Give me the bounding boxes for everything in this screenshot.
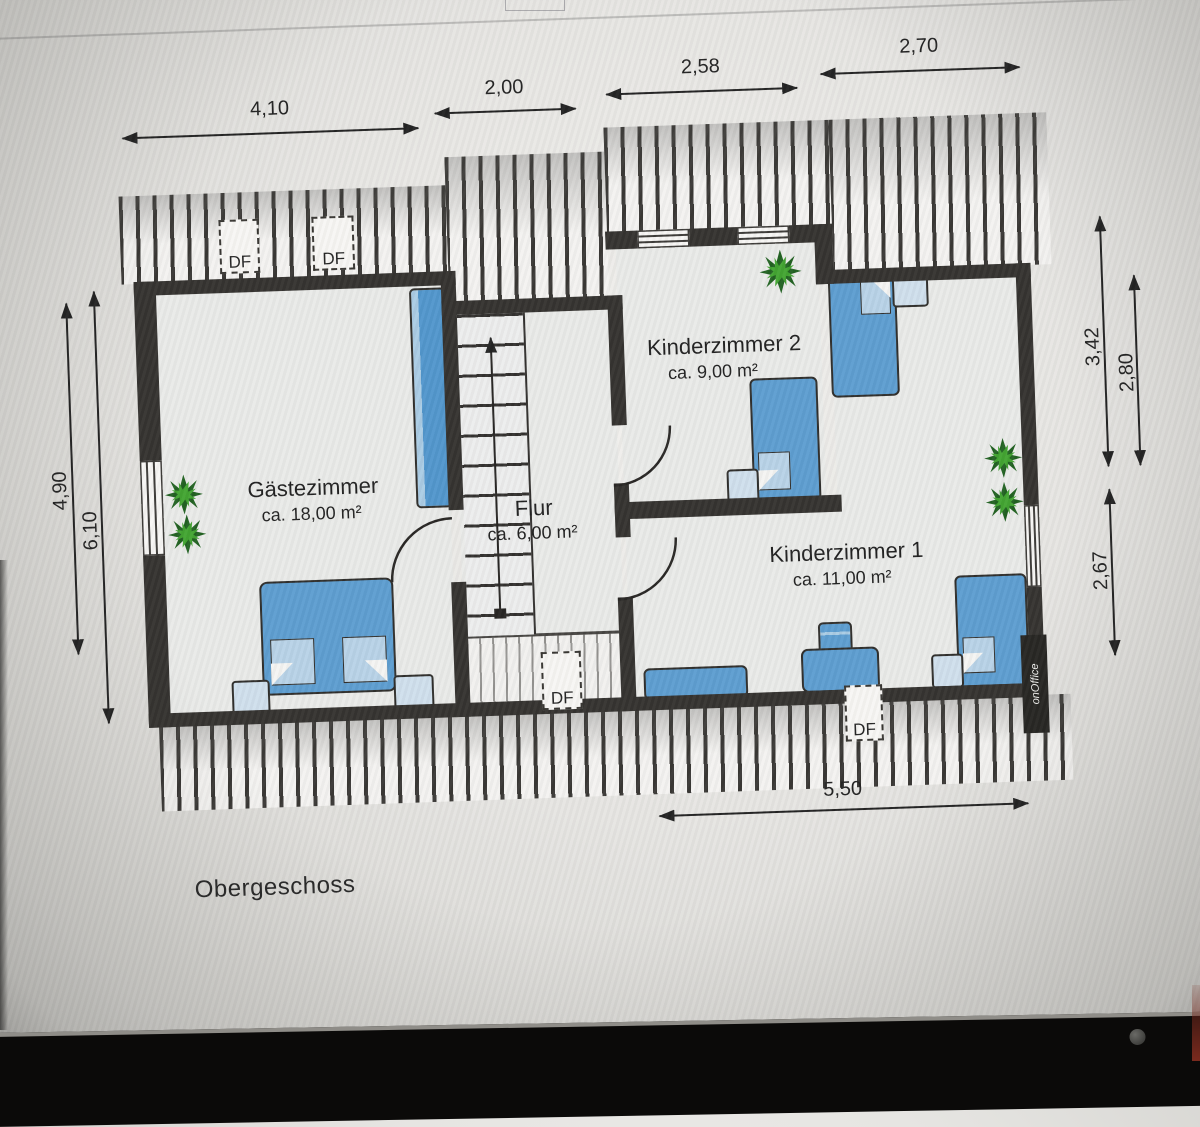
watermark-text: onOffice <box>1028 663 1041 704</box>
dim-label-bottom: 5,50 <box>823 778 863 802</box>
dim-line-top-2 <box>435 109 576 114</box>
room-name-hall: Flur <box>514 495 553 522</box>
dim-line-bottom <box>659 803 1028 816</box>
room-name-child1: Kinderzimmer 1 <box>769 537 924 568</box>
room-name-child2: Kinderzimmer 2 <box>647 330 802 361</box>
dim-label-right-2: 2,80 <box>1115 353 1139 393</box>
room-area-guest: ca. 18,00 m² <box>261 502 362 526</box>
dim-label-right-3: 2,67 <box>1089 551 1113 591</box>
room-area-hall: ca. 6,00 m² <box>487 521 578 545</box>
watermark-badge: onOffice <box>1020 635 1049 734</box>
dim-line-top-1 <box>122 128 418 138</box>
floor-plan: DF DF DF DF <box>0 0 1200 1082</box>
dim-label-left-2: 6,10 <box>79 511 103 551</box>
dim-label-left-1: 4,90 <box>49 471 73 511</box>
dim-line-top-3 <box>606 88 797 95</box>
door-arc-child1 <box>616 537 678 599</box>
dim-label-top-1: 4,10 <box>250 97 290 121</box>
stair-direction-line <box>491 338 501 612</box>
door-arc-guest <box>390 518 454 582</box>
dim-label-right-1: 3,42 <box>1081 327 1105 367</box>
door-arc-child2 <box>612 426 672 486</box>
room-area-child2: ca. 9,00 m² <box>668 360 759 384</box>
linework-layer <box>0 0 1200 1082</box>
dim-line-top-4 <box>821 67 1020 74</box>
stair-start-marker <box>495 609 505 617</box>
dim-label-top-2: 2,00 <box>484 76 524 100</box>
dim-label-top-4: 2,70 <box>899 34 939 58</box>
room-area-child1: ca. 11,00 m² <box>793 566 892 590</box>
room-name-guest: Gästezimmer <box>247 473 379 504</box>
dim-label-top-3: 2,58 <box>680 55 720 79</box>
floor-title: Obergeschoss <box>194 871 356 905</box>
dim-line-left-2 <box>94 292 109 724</box>
